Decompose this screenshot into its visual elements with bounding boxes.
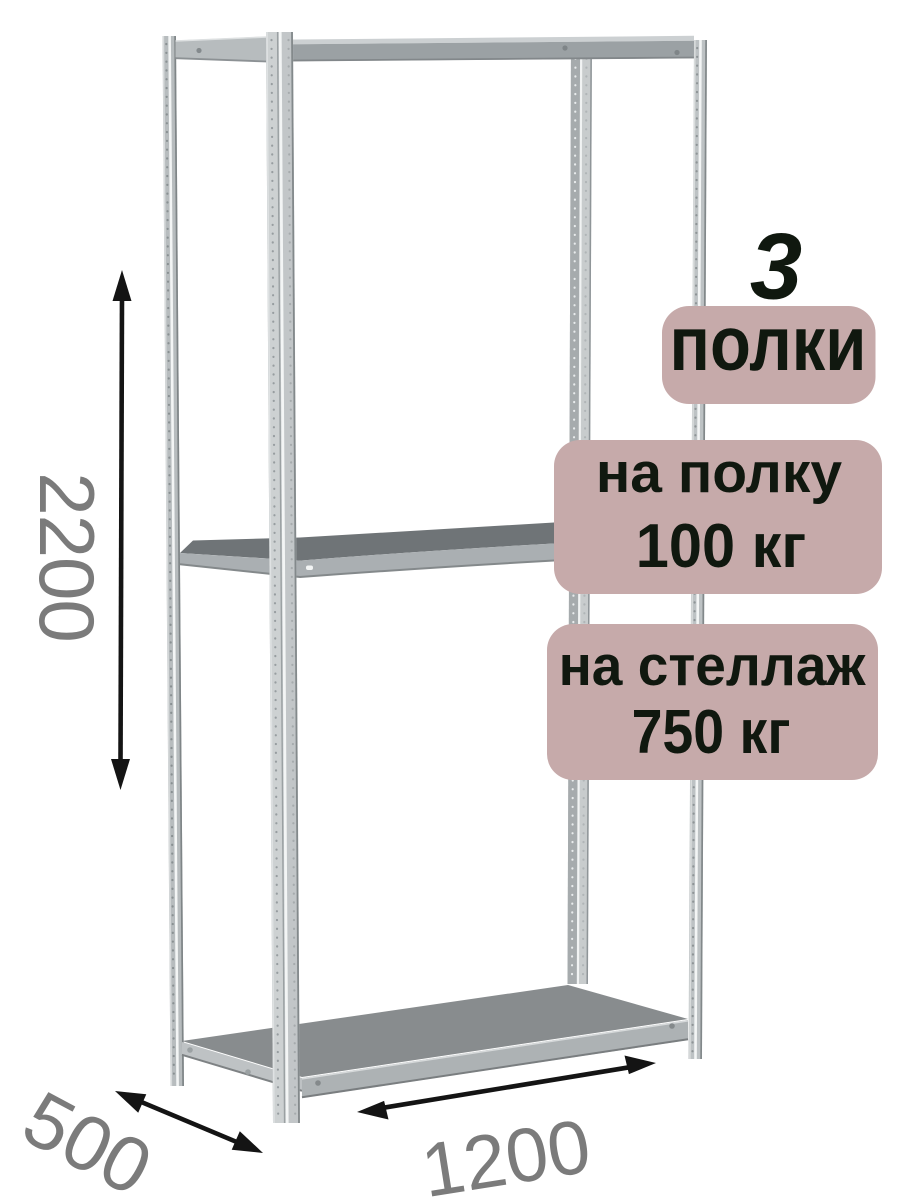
svg-text:750 кг: 750 кг	[632, 698, 791, 766]
svg-text:на стеллаж: на стеллаж	[559, 633, 867, 697]
svg-text:2200: 2200	[23, 472, 111, 642]
svg-text:на полку: на полку	[596, 441, 843, 505]
svg-text:100 кг: 100 кг	[636, 511, 806, 580]
svg-text:полки: полки	[670, 302, 867, 387]
